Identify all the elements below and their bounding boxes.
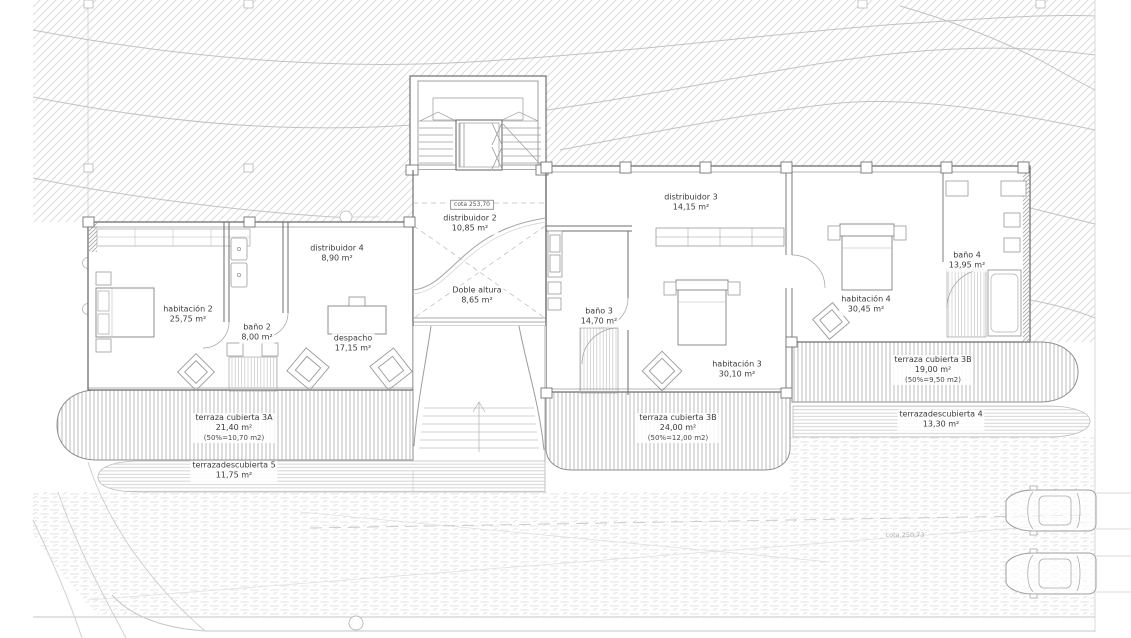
shower-3 — [580, 328, 618, 393]
car-2 — [1006, 549, 1096, 598]
shower-4 — [947, 269, 986, 337]
terrace-descubierta-5 — [98, 461, 545, 492]
shower-2 — [229, 357, 277, 391]
wardrobe-3 — [656, 228, 784, 246]
sink-3 — [548, 231, 562, 310]
car-1 — [1006, 486, 1096, 535]
bathtub-4 — [988, 270, 1021, 336]
floor-plan-svg — [0, 0, 1131, 638]
grid-bubble — [349, 616, 363, 630]
floor-plan-canvas: habitación 225,75 m²baño 28,00 m²despach… — [0, 0, 1131, 638]
terrace-descubierta-4 — [793, 406, 1090, 437]
